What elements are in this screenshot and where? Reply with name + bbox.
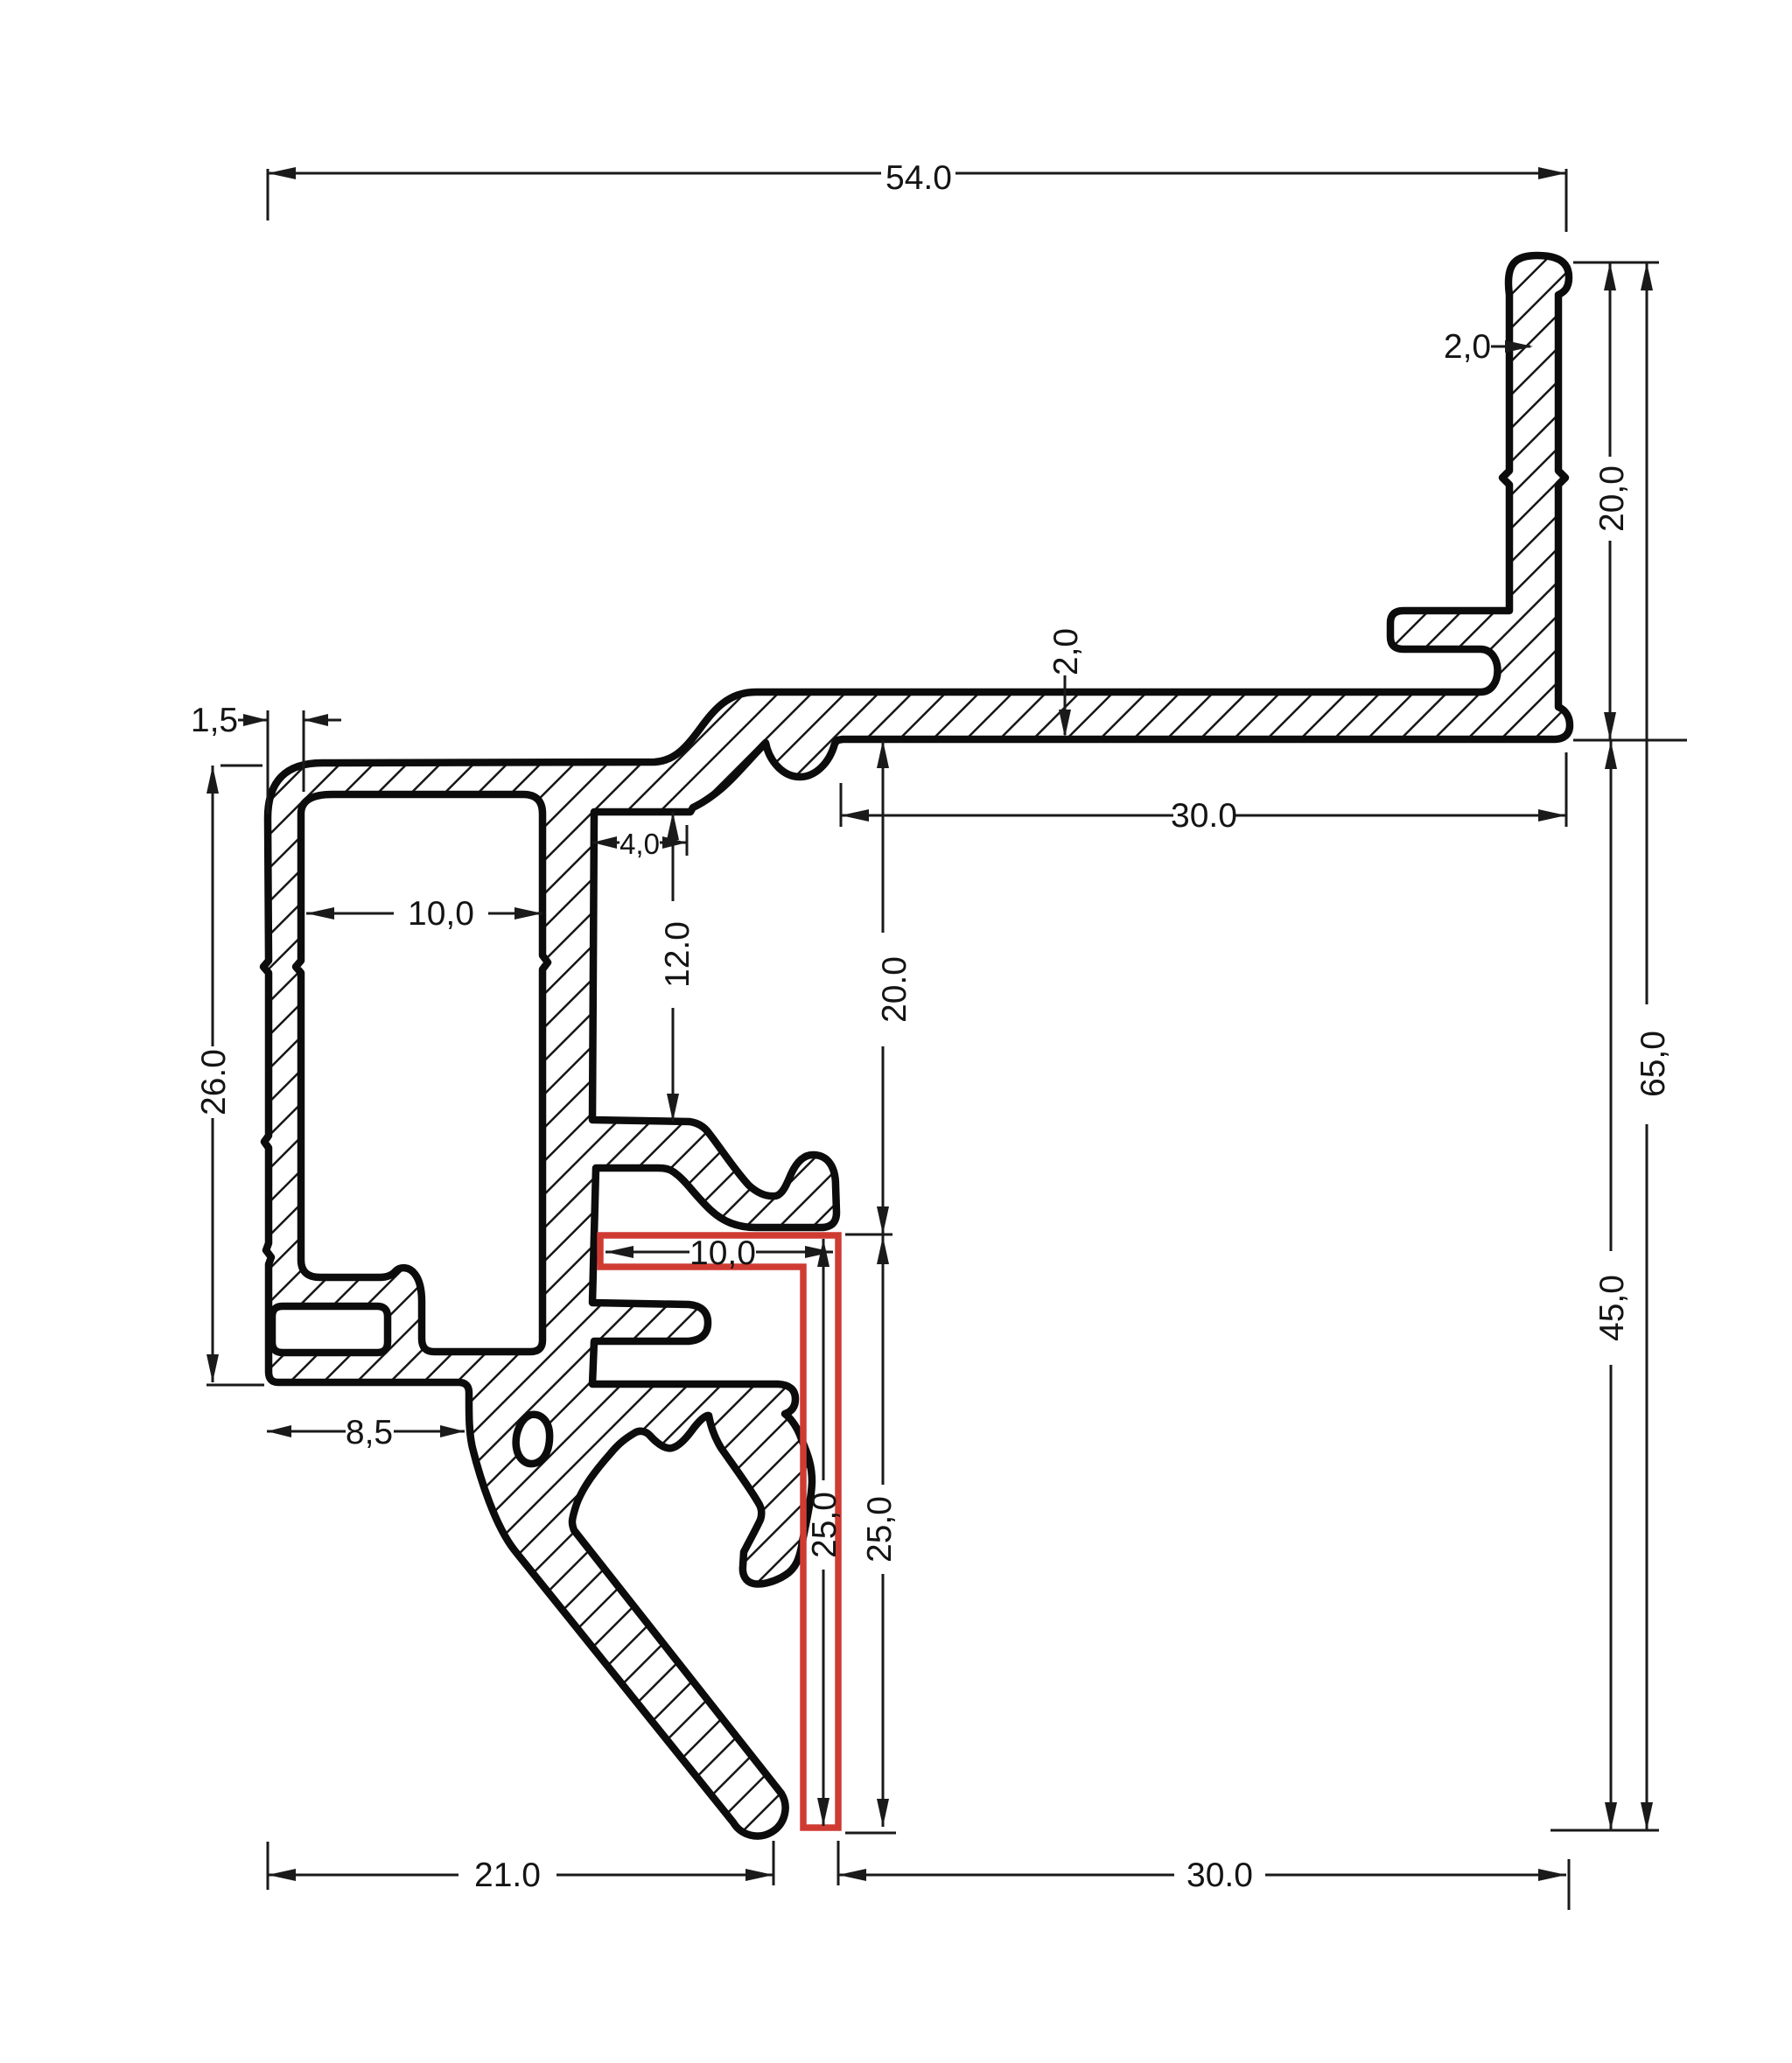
svg-text:8,5: 8,5 (346, 1414, 393, 1451)
svg-text:20,0: 20,0 (1593, 465, 1631, 532)
svg-text:65,0: 65,0 (1634, 1031, 1672, 1097)
svg-text:21.0: 21.0 (474, 1857, 541, 1894)
svg-text:2,0: 2,0 (1047, 628, 1085, 675)
svg-text:4,0: 4,0 (619, 828, 660, 860)
svg-text:54.0: 54.0 (885, 159, 952, 197)
svg-text:10,0: 10,0 (408, 895, 474, 933)
svg-text:25,0: 25,0 (861, 1496, 899, 1563)
svg-text:2,0: 2,0 (1444, 328, 1491, 366)
svg-text:25,0: 25,0 (806, 1492, 843, 1558)
svg-text:12.0: 12.0 (659, 921, 696, 988)
svg-text:30.0: 30.0 (1186, 1857, 1253, 1894)
svg-text:20.0: 20.0 (876, 956, 913, 1023)
svg-text:26.0: 26.0 (195, 1049, 233, 1115)
svg-text:1,5: 1,5 (191, 702, 238, 739)
svg-text:10,0: 10,0 (689, 1234, 756, 1272)
svg-text:45,0: 45,0 (1593, 1275, 1631, 1341)
svg-text:30.0: 30.0 (1171, 797, 1237, 835)
